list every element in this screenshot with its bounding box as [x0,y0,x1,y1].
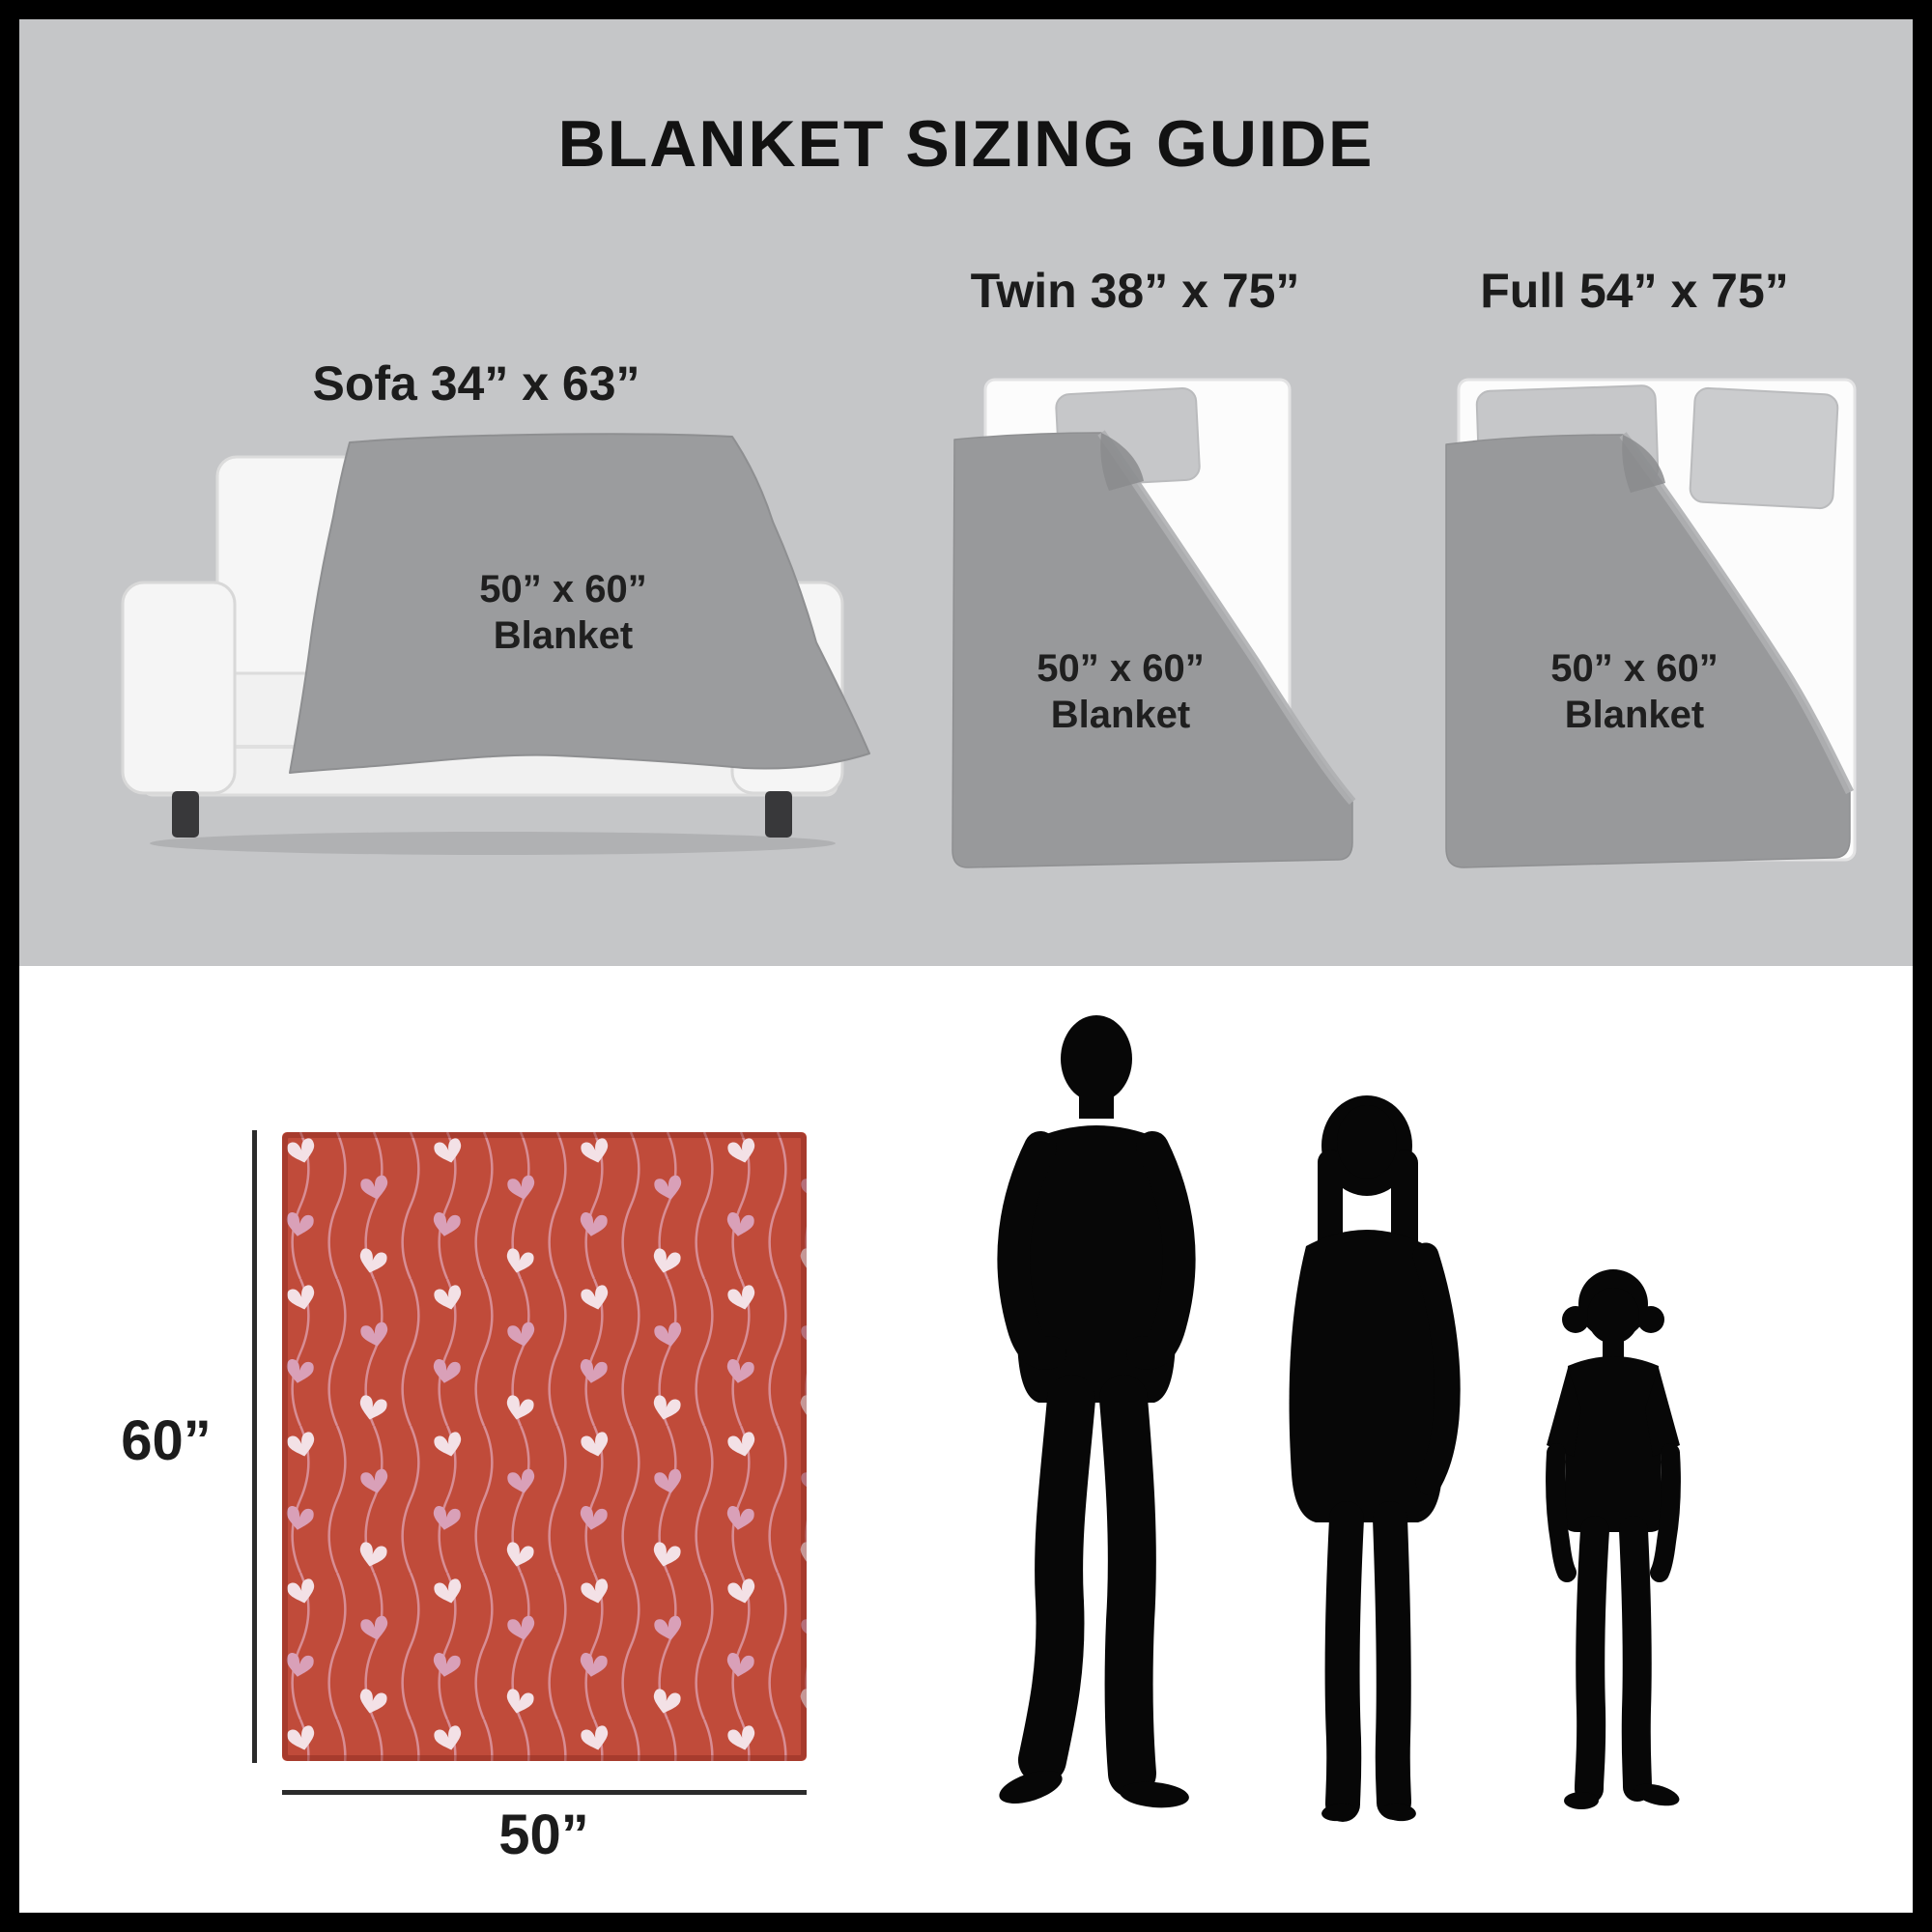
twin-bed-illustration-icon [947,377,1401,898]
sofa-size-label: Sofa 34” x 63” [186,355,766,412]
height-dimension-label: 60” [70,1408,263,1473]
man-silhouette-icon [995,1015,1190,1810]
sofa-leg-right [765,791,792,838]
full-blanket-note-line1: 50” x 60” [1490,645,1779,692]
full-size-label: Full 54” x 75” [1393,263,1876,319]
sofa-blanket-note-line1: 50” x 60” [418,566,708,612]
infographic-canvas: BLANKET SIZING GUIDE Sofa 34” x 63” Twin… [19,19,1913,1913]
width-dimension-line [282,1790,807,1795]
sofa-shadow [150,832,836,855]
sofa-arm-left [123,582,235,793]
infographic-frame: BLANKET SIZING GUIDE Sofa 34” x 63” Twin… [0,0,1932,1932]
full-blanket-note-line2: Blanket [1490,692,1779,738]
twin-blanket-note-line2: Blanket [976,692,1265,738]
twin-blanket-note: 50” x 60” Blanket [976,645,1265,738]
red-blanket-hearts [282,1132,807,1761]
woman-silhouette-icon [1290,1095,1448,1823]
heart-pattern-blanket-icon [282,1132,807,1761]
sofa-blanket-note: 50” x 60” Blanket [418,566,708,659]
sofa-leg-left [172,791,199,838]
width-dimension-label: 50” [447,1803,640,1867]
twin-blanket-note-line1: 50” x 60” [976,645,1265,692]
full-blanket-note: 50” x 60” Blanket [1490,645,1779,738]
people-scale-silhouettes [966,1014,1719,1826]
twin-size-label: Twin 38” x 75” [894,263,1377,319]
boy-silhouette-icon [1547,1269,1682,1810]
sofa-blanket-note-line2: Blanket [418,612,708,659]
full-bed-illustration-icon [1439,377,1893,898]
full-pillow-right [1690,387,1838,509]
sizing-guide-panel: BLANKET SIZING GUIDE Sofa 34” x 63” Twin… [19,19,1913,966]
page-title: BLANKET SIZING GUIDE [19,106,1913,182]
